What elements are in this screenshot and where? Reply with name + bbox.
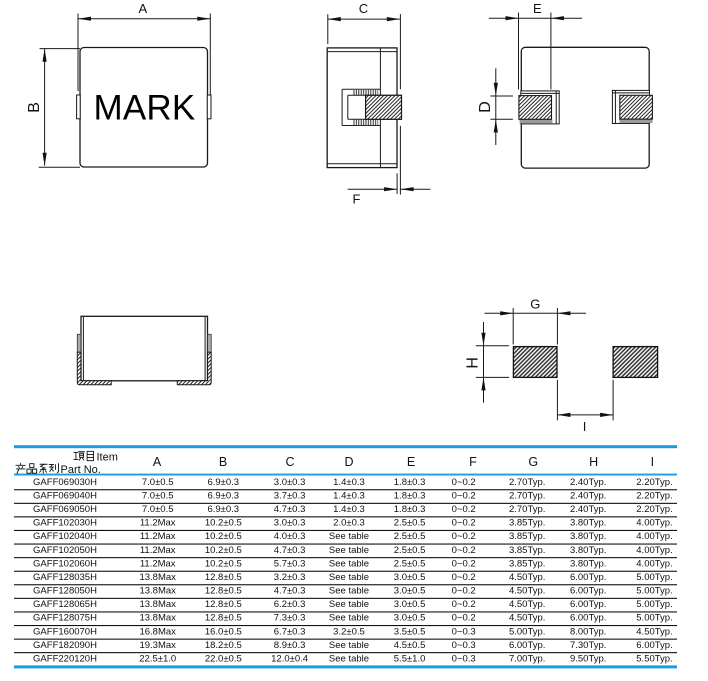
svg-text:7.30Typ.: 7.30Typ. <box>570 640 606 651</box>
svg-text:3.85Typ.: 3.85Typ. <box>509 545 545 556</box>
svg-text:E: E <box>533 1 542 16</box>
svg-text:GAFF160070H: GAFF160070H <box>33 626 97 637</box>
svg-text:See table: See table <box>329 558 369 569</box>
svg-text:0~0.2: 0~0.2 <box>452 477 476 488</box>
svg-text:12.8±0.5: 12.8±0.5 <box>205 586 242 597</box>
svg-text:GAFF182090H: GAFF182090H <box>33 640 97 651</box>
svg-text:16.0±0.5: 16.0±0.5 <box>205 626 242 637</box>
svg-text:1.8±0.3: 1.8±0.3 <box>394 491 426 502</box>
svg-text:2.40Typ.: 2.40Typ. <box>570 477 606 488</box>
svg-text:5.00Typ.: 5.00Typ. <box>509 626 545 637</box>
svg-text:6.00Typ.: 6.00Typ. <box>509 640 545 651</box>
svg-text:5.50Typ.: 5.50Typ. <box>636 653 672 664</box>
svg-text:E: E <box>407 455 415 469</box>
svg-text:See table: See table <box>329 531 369 542</box>
svg-text:5.00Typ.: 5.00Typ. <box>636 599 672 610</box>
svg-text:4.50Typ.: 4.50Typ. <box>636 626 672 637</box>
svg-text:3.5±0.5: 3.5±0.5 <box>394 626 426 637</box>
svg-text:12.8±0.5: 12.8±0.5 <box>205 599 242 610</box>
svg-text:1.4±0.3: 1.4±0.3 <box>333 504 365 515</box>
svg-text:4.50Typ.: 4.50Typ. <box>509 572 545 583</box>
svg-text:7.0±0.5: 7.0±0.5 <box>142 477 174 488</box>
svg-text:4.50Typ.: 4.50Typ. <box>509 599 545 610</box>
svg-text:2.5±0.5: 2.5±0.5 <box>394 531 426 542</box>
svg-text:4.50Typ.: 4.50Typ. <box>509 586 545 597</box>
svg-text:2.70Typ.: 2.70Typ. <box>509 504 545 515</box>
svg-text:GAFF128050H: GAFF128050H <box>33 586 97 597</box>
svg-text:6.9±0.3: 6.9±0.3 <box>207 477 239 488</box>
svg-text:22.0±0.5: 22.0±0.5 <box>205 653 242 664</box>
svg-text:3.2±0.3: 3.2±0.3 <box>274 572 306 583</box>
svg-text:4.7±0.3: 4.7±0.3 <box>274 545 306 556</box>
svg-text:F: F <box>353 192 361 207</box>
svg-text:See table: See table <box>329 586 369 597</box>
svg-text:A: A <box>153 455 162 469</box>
svg-text:6.2±0.3: 6.2±0.3 <box>274 599 306 610</box>
svg-text:4.00Typ.: 4.00Typ. <box>636 558 672 569</box>
svg-text:0~0.2: 0~0.2 <box>452 599 476 610</box>
svg-text:8.9±0.3: 8.9±0.3 <box>274 640 306 651</box>
svg-text:3.0±0.3: 3.0±0.3 <box>274 477 306 488</box>
svg-text:A: A <box>138 1 147 16</box>
svg-text:GAFF128065H: GAFF128065H <box>33 599 97 610</box>
svg-text:3.85Typ.: 3.85Typ. <box>509 531 545 542</box>
svg-text:1.8±0.3: 1.8±0.3 <box>394 504 426 515</box>
svg-text:11.2Max: 11.2Max <box>140 518 176 529</box>
svg-text:4.00Typ.: 4.00Typ. <box>636 531 672 542</box>
svg-text:0~0.2: 0~0.2 <box>452 572 476 583</box>
svg-text:6.9±0.3: 6.9±0.3 <box>207 504 239 515</box>
svg-text:10.2±0.5: 10.2±0.5 <box>205 531 242 542</box>
svg-text:18.2±0.5: 18.2±0.5 <box>205 640 242 651</box>
svg-text:10.2±0.5: 10.2±0.5 <box>205 518 242 529</box>
svg-text:4.7±0.3: 4.7±0.3 <box>274 504 306 515</box>
svg-text:GAFF128035H: GAFF128035H <box>33 572 97 583</box>
svg-text:H: H <box>589 455 598 469</box>
svg-text:C: C <box>285 455 294 469</box>
svg-text:13.8Max: 13.8Max <box>139 572 176 583</box>
svg-text:See table: See table <box>329 599 369 610</box>
svg-text:9.50Typ.: 9.50Typ. <box>570 653 606 664</box>
svg-text:GAFF069050H: GAFF069050H <box>33 504 97 515</box>
svg-text:11.2Max: 11.2Max <box>140 531 176 542</box>
svg-text:0~0.3: 0~0.3 <box>452 653 476 664</box>
svg-text:3.80Typ.: 3.80Typ. <box>570 531 606 542</box>
svg-text:I: I <box>651 455 654 469</box>
svg-text:0~0.2: 0~0.2 <box>452 613 476 624</box>
svg-text:3.2±0.5: 3.2±0.5 <box>333 626 365 637</box>
svg-text:H: H <box>464 357 481 369</box>
svg-text:G: G <box>528 455 538 469</box>
svg-text:5.5±1.0: 5.5±1.0 <box>394 653 426 664</box>
svg-text:GAFF069030H: GAFF069030H <box>33 477 97 488</box>
svg-text:GAFF220120H: GAFF220120H <box>33 653 97 664</box>
svg-text:2.5±0.5: 2.5±0.5 <box>394 558 426 569</box>
svg-text:0~0.3: 0~0.3 <box>452 626 476 637</box>
svg-text:4.7±0.3: 4.7±0.3 <box>274 586 306 597</box>
svg-text:5.00Typ.: 5.00Typ. <box>636 586 672 597</box>
svg-text:2.5±0.5: 2.5±0.5 <box>394 518 426 529</box>
svg-text:F: F <box>469 455 477 469</box>
svg-text:12.0±0.4: 12.0±0.4 <box>271 653 308 664</box>
svg-text:12.8±0.5: 12.8±0.5 <box>205 613 242 624</box>
svg-text:7.00Typ.: 7.00Typ. <box>509 653 545 664</box>
svg-text:See table: See table <box>329 572 369 583</box>
svg-text:D: D <box>344 455 353 469</box>
svg-text:0~0.3: 0~0.3 <box>452 640 476 651</box>
svg-text:3.0±0.5: 3.0±0.5 <box>394 599 426 610</box>
svg-text:2.40Typ.: 2.40Typ. <box>570 491 606 502</box>
svg-text:G: G <box>530 297 540 312</box>
svg-text:0~0.2: 0~0.2 <box>452 586 476 597</box>
svg-text:16.8Max: 16.8Max <box>139 626 176 637</box>
svg-text:3.0±0.5: 3.0±0.5 <box>394 613 426 624</box>
svg-text:See table: See table <box>329 653 369 664</box>
svg-text:2.20Typ.: 2.20Typ. <box>636 477 672 488</box>
svg-text:4.50Typ.: 4.50Typ. <box>509 613 545 624</box>
svg-text:MARK: MARK <box>94 89 196 128</box>
svg-text:3.85Typ.: 3.85Typ. <box>509 558 545 569</box>
svg-text:GAFF102050H: GAFF102050H <box>33 545 97 556</box>
svg-text:GAFF128075H: GAFF128075H <box>33 613 97 624</box>
svg-text:GAFF069040H: GAFF069040H <box>33 491 97 502</box>
svg-text:0~0.2: 0~0.2 <box>452 518 476 529</box>
svg-text:C: C <box>359 1 368 16</box>
svg-text:6.00Typ.: 6.00Typ. <box>570 613 606 624</box>
svg-text:7.3±0.3: 7.3±0.3 <box>274 613 306 624</box>
svg-text:6.00Typ.: 6.00Typ. <box>636 640 672 651</box>
svg-text:10.2±0.5: 10.2±0.5 <box>205 545 242 556</box>
svg-text:See table: See table <box>329 613 369 624</box>
svg-text:13.8Max: 13.8Max <box>139 586 176 597</box>
svg-text:3.80Typ.: 3.80Typ. <box>570 518 606 529</box>
svg-text:4.00Typ.: 4.00Typ. <box>636 518 672 529</box>
svg-text:2.0±0.3: 2.0±0.3 <box>333 518 365 529</box>
svg-text:11.2Max: 11.2Max <box>140 558 176 569</box>
svg-text:3.7±0.3: 3.7±0.3 <box>274 491 306 502</box>
svg-text:1.4±0.3: 1.4±0.3 <box>333 491 365 502</box>
svg-text:6.9±0.3: 6.9±0.3 <box>207 491 239 502</box>
svg-text:See table: See table <box>329 545 369 556</box>
svg-text:0~0.2: 0~0.2 <box>452 545 476 556</box>
svg-text:0~0.2: 0~0.2 <box>452 491 476 502</box>
svg-text:0~0.2: 0~0.2 <box>452 558 476 569</box>
svg-text:GAFF102040H: GAFF102040H <box>33 531 97 542</box>
svg-text:19.3Max: 19.3Max <box>139 640 176 651</box>
svg-text:3.80Typ.: 3.80Typ. <box>570 558 606 569</box>
svg-text:See table: See table <box>329 640 369 651</box>
svg-text:4.00Typ.: 4.00Typ. <box>636 545 672 556</box>
svg-text:Item: Item <box>97 451 118 463</box>
svg-text:2.20Typ.: 2.20Typ. <box>636 504 672 515</box>
svg-text:6.7±0.3: 6.7±0.3 <box>274 626 306 637</box>
svg-text:3.0±0.5: 3.0±0.5 <box>394 572 426 583</box>
svg-text:3.0±0.5: 3.0±0.5 <box>394 586 426 597</box>
svg-text:3.85Typ.: 3.85Typ. <box>509 518 545 529</box>
svg-text:6.00Typ.: 6.00Typ. <box>570 572 606 583</box>
svg-text:Part No.: Part No. <box>61 464 101 476</box>
svg-text:13.8Max: 13.8Max <box>139 599 176 610</box>
svg-text:I: I <box>583 419 587 434</box>
svg-text:4.5±0.5: 4.5±0.5 <box>394 640 426 651</box>
svg-text:2.40Typ.: 2.40Typ. <box>570 504 606 515</box>
svg-text:5.7±0.3: 5.7±0.3 <box>274 558 306 569</box>
svg-text:10.2±0.5: 10.2±0.5 <box>205 558 242 569</box>
svg-text:3.80Typ.: 3.80Typ. <box>570 545 606 556</box>
svg-text:2.70Typ.: 2.70Typ. <box>509 477 545 488</box>
svg-text:GAFF102060H: GAFF102060H <box>33 558 97 569</box>
svg-text:12.8±0.5: 12.8±0.5 <box>205 572 242 583</box>
svg-text:0~0.2: 0~0.2 <box>452 531 476 542</box>
svg-text:4.0±0.3: 4.0±0.3 <box>274 531 306 542</box>
svg-text:D: D <box>477 101 494 113</box>
svg-text:1.8±0.3: 1.8±0.3 <box>394 477 426 488</box>
svg-text:7.0±0.5: 7.0±0.5 <box>142 491 174 502</box>
svg-text:8.00Typ.: 8.00Typ. <box>570 626 606 637</box>
svg-text:3.0±0.3: 3.0±0.3 <box>274 518 306 529</box>
svg-text:5.00Typ.: 5.00Typ. <box>636 613 672 624</box>
svg-text:6.00Typ.: 6.00Typ. <box>570 599 606 610</box>
svg-text:2.20Typ.: 2.20Typ. <box>636 491 672 502</box>
svg-text:5.00Typ.: 5.00Typ. <box>636 572 672 583</box>
svg-text:B: B <box>26 102 43 113</box>
svg-text:6.00Typ.: 6.00Typ. <box>570 586 606 597</box>
svg-text:2.70Typ.: 2.70Typ. <box>509 491 545 502</box>
svg-text:1.4±0.3: 1.4±0.3 <box>333 477 365 488</box>
svg-text:13.8Max: 13.8Max <box>139 613 176 624</box>
svg-text:0~0.2: 0~0.2 <box>452 504 476 515</box>
svg-text:11.2Max: 11.2Max <box>140 545 176 556</box>
svg-text:GAFF102030H: GAFF102030H <box>33 518 97 529</box>
svg-text:2.5±0.5: 2.5±0.5 <box>394 545 426 556</box>
svg-text:7.0±0.5: 7.0±0.5 <box>142 504 174 515</box>
svg-text:B: B <box>219 455 227 469</box>
svg-text:22.5±1.0: 22.5±1.0 <box>139 653 176 664</box>
